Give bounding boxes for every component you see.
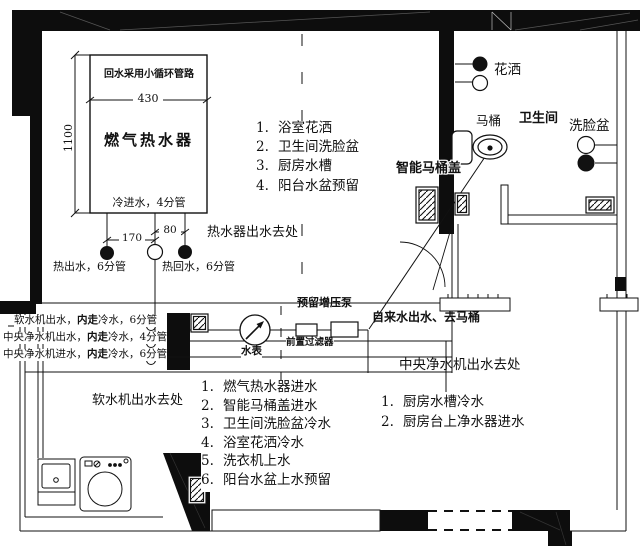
toilet-symbol bbox=[452, 131, 507, 164]
list-item: 5.洗衣机上水 bbox=[201, 454, 331, 473]
heater-width-dim: 430 bbox=[133, 93, 163, 105]
list-item: 3.厨房水槽 bbox=[256, 159, 359, 178]
door-leaf bbox=[433, 232, 450, 290]
hot-water-dest-list: 1.浴室花洒 2.卫生间洗脸盆 3.厨房水槽 4.阳台水盆预留 bbox=[256, 121, 359, 198]
shower-label: 花洒 bbox=[494, 63, 521, 78]
list-item: 1.浴室花洒 bbox=[256, 121, 359, 140]
list-item: 6.阳台水盆上水预留 bbox=[201, 473, 331, 492]
tap-water-label: 自来水出水、去马桶 bbox=[372, 311, 480, 324]
cold-inlet-label: 冷进水，4分管 bbox=[92, 197, 206, 209]
pre-filter-label: 前置过滤器 bbox=[286, 338, 334, 349]
central-water-dest-list: 1.厨房水槽冷水 2.厨房台上净水器进水 bbox=[381, 395, 525, 435]
toilet-label: 马桶 bbox=[476, 114, 501, 128]
dim-170-label: 170 bbox=[119, 233, 145, 245]
water-meter-label: 水表 bbox=[241, 346, 262, 358]
dim-80-label: 80 bbox=[159, 225, 181, 237]
central-water-dest-title: 中央净水机出水去处 bbox=[399, 358, 521, 373]
soft-water-dest-list: 1.燃气热水器进水 2.智能马桶盖进水 3.卫生间洗脸盆冷水 4.浴室花洒冷水 … bbox=[201, 380, 331, 492]
pre-filter-symbol bbox=[331, 322, 358, 337]
hot-out-label: 热出水，6分管 bbox=[53, 261, 126, 273]
laundry-fixtures bbox=[38, 457, 131, 511]
hot-return-label: 热回水，6分管 bbox=[162, 261, 235, 273]
list-item: 1.燃气热水器进水 bbox=[201, 380, 331, 399]
heater-height-dim: 1100 bbox=[63, 124, 75, 152]
basin-hot-valve bbox=[578, 155, 594, 171]
list-item: 2.厨房台上净水器进水 bbox=[381, 415, 525, 435]
heater-note-label: 回水采用小循环管路 bbox=[92, 69, 206, 80]
smart-toilet-lid-label: 智能马桶盖 bbox=[396, 162, 461, 177]
soft-water-pipe-label: 软水机出水，内走冷水，6分管 bbox=[14, 315, 157, 327]
central-out-pipe-label: 中央净水机出水，内走冷水，4分管 bbox=[3, 332, 167, 344]
soft-water-dest-title: 软水机出水去处 bbox=[92, 394, 183, 409]
plumbing-floor-plan: 回水采用小循环管路 430 燃气热水器 冷进水，4分管 1100 170 80 … bbox=[0, 0, 640, 546]
list-item: 1.厨房水槽冷水 bbox=[381, 395, 525, 415]
basin-label: 洗脸盆 bbox=[569, 119, 610, 134]
washing-machine-symbol bbox=[80, 457, 131, 511]
heater-name-label: 燃气热水器 bbox=[92, 132, 206, 149]
central-in-pipe-label: 中央净水机进水，内走冷水，6分管 bbox=[3, 349, 167, 361]
pre-filter-symbol bbox=[296, 324, 317, 336]
list-item: 2.智能马桶盖进水 bbox=[201, 399, 331, 418]
basin-cold-valve bbox=[578, 137, 595, 154]
bathroom-room-label: 卫生间 bbox=[519, 112, 558, 127]
shower-cold-valve bbox=[473, 76, 488, 91]
shower-hot-valve bbox=[473, 57, 487, 71]
list-item: 4.浴室花洒冷水 bbox=[201, 436, 331, 455]
list-item: 4.阳台水盆预留 bbox=[256, 179, 359, 198]
list-item: 2.卫生间洗脸盆 bbox=[256, 140, 359, 159]
dashed-opening bbox=[428, 511, 512, 530]
hot-water-dest-title: 热水器出水去处 bbox=[207, 226, 298, 241]
sink-symbol bbox=[38, 459, 75, 505]
list-item: 3.卫生间洗脸盆冷水 bbox=[201, 417, 331, 436]
reserved-pump-label: 预留增压泵 bbox=[297, 297, 352, 309]
threshold-bars bbox=[440, 294, 638, 311]
